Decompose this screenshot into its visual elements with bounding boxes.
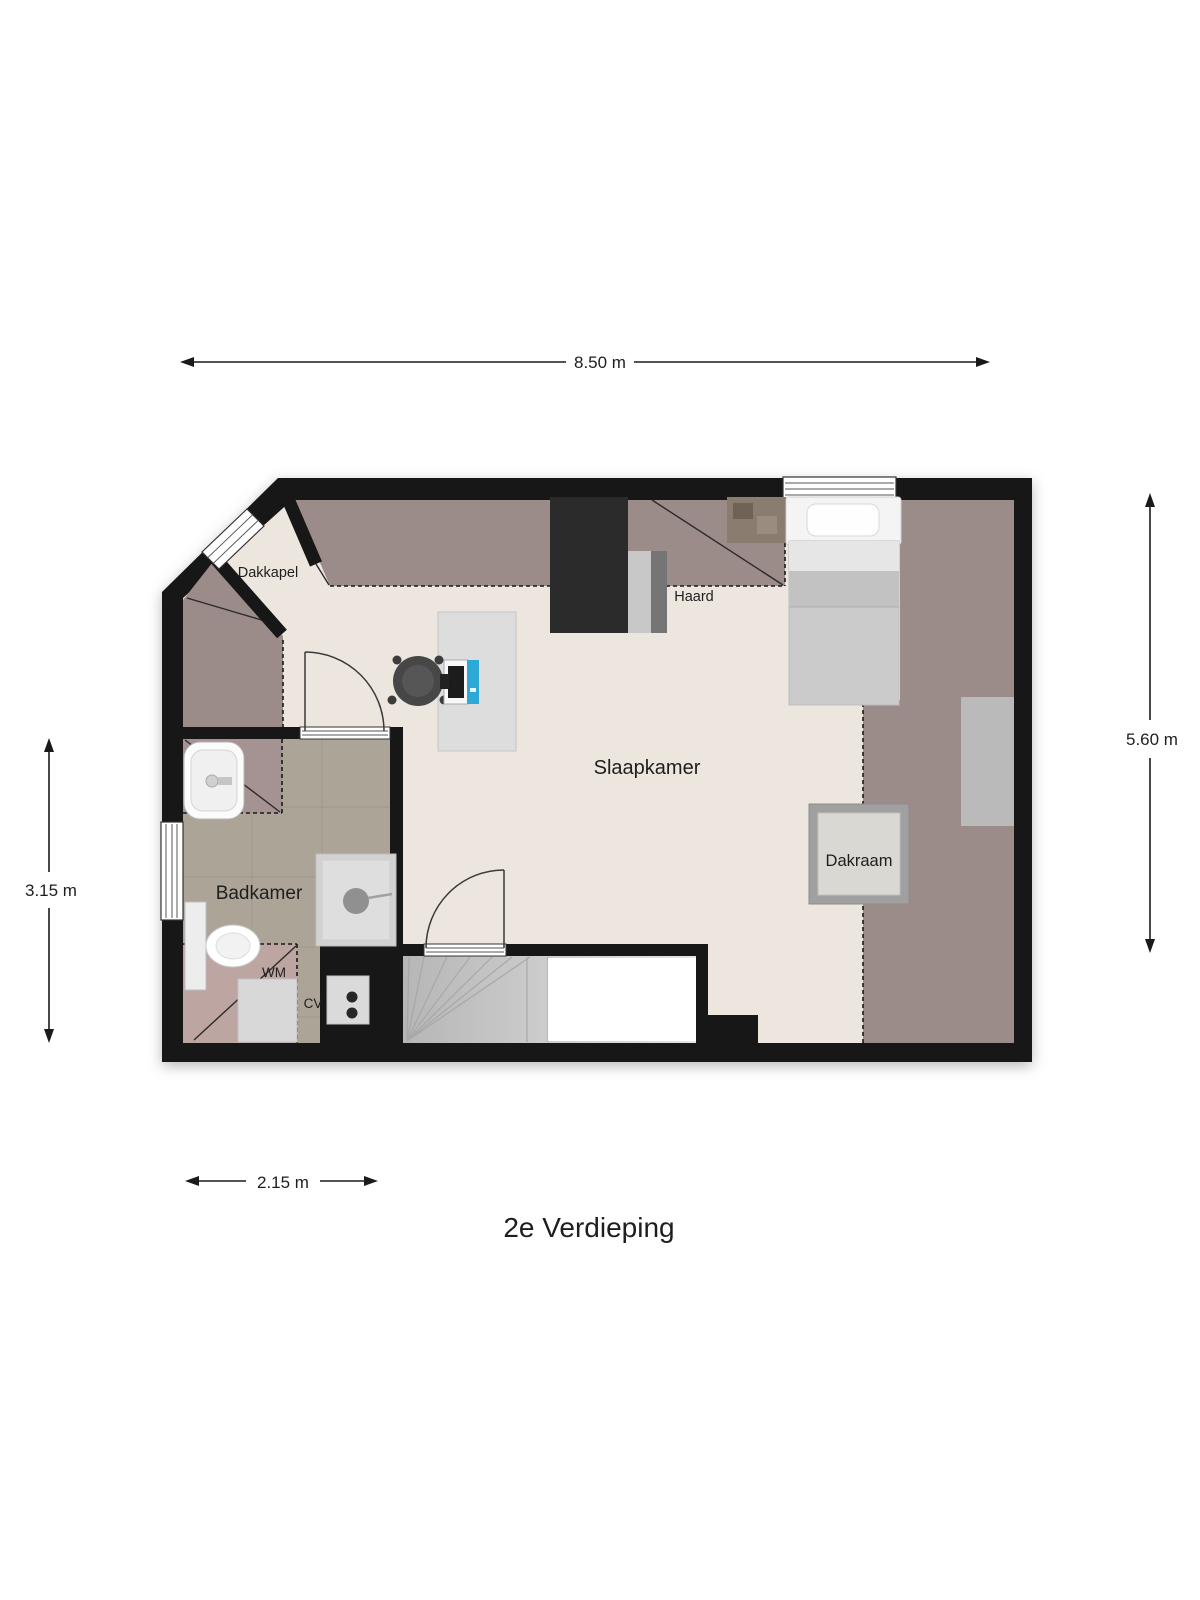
floor-title: 2e Verdieping — [503, 1212, 674, 1243]
stair-door-threshold — [424, 944, 506, 956]
bathroom-door-threshold — [300, 727, 390, 739]
shower-drain — [343, 888, 369, 914]
dimension-left-label: 3.15 m — [25, 881, 77, 900]
bedroom-label: Slaapkamer — [594, 757, 701, 779]
sink-tap — [218, 777, 232, 785]
dimension-top-label: 8.50 m — [574, 353, 626, 372]
storage-cabinet — [961, 697, 1014, 826]
wall-block-right-of-stairs — [708, 1015, 758, 1043]
wardrobe — [550, 497, 628, 633]
monitor-stand — [440, 674, 449, 689]
floor-plan: Dakkapel Haard Slaapkamer Dakraam Badkam… — [0, 0, 1200, 1600]
dimension-bottom-label: 2.15 m — [257, 1173, 309, 1192]
staircase — [403, 956, 696, 1043]
dimension-right-label: 5.60 m — [1126, 730, 1178, 749]
central-heating-label: CV — [304, 996, 323, 1011]
desktop-monitor — [440, 660, 479, 704]
stairwell-void — [548, 958, 696, 1041]
sloped-zone-top — [293, 500, 785, 586]
toilet-tank — [185, 902, 206, 990]
sink-drain — [206, 775, 218, 787]
central-heating-unit — [327, 976, 369, 1024]
floorplan-page: Dakkapel Haard Slaapkamer Dakraam Badkam… — [0, 0, 1200, 1600]
bed-sheet — [789, 541, 899, 571]
washbasin — [184, 742, 244, 819]
roof-window-label: Dakraam — [826, 852, 893, 870]
fireplace — [727, 497, 786, 543]
bathroom-wall-top-left — [183, 727, 300, 739]
shower — [316, 854, 396, 946]
dormer-label: Dakkapel — [238, 565, 298, 581]
bathroom-label: Badkamer — [216, 883, 303, 904]
bed — [786, 497, 901, 705]
dresser — [628, 551, 667, 633]
washing-machine-label: WM — [262, 965, 286, 980]
washing-machine — [238, 979, 297, 1042]
stair-wall-top — [506, 944, 708, 956]
monitor-accent-panel — [467, 660, 479, 704]
monitor-screen — [448, 666, 464, 698]
blanket-fold — [789, 571, 899, 607]
stair-wall-right — [696, 944, 708, 1043]
fireplace-label: Haard — [674, 589, 714, 605]
pillow — [807, 504, 879, 536]
